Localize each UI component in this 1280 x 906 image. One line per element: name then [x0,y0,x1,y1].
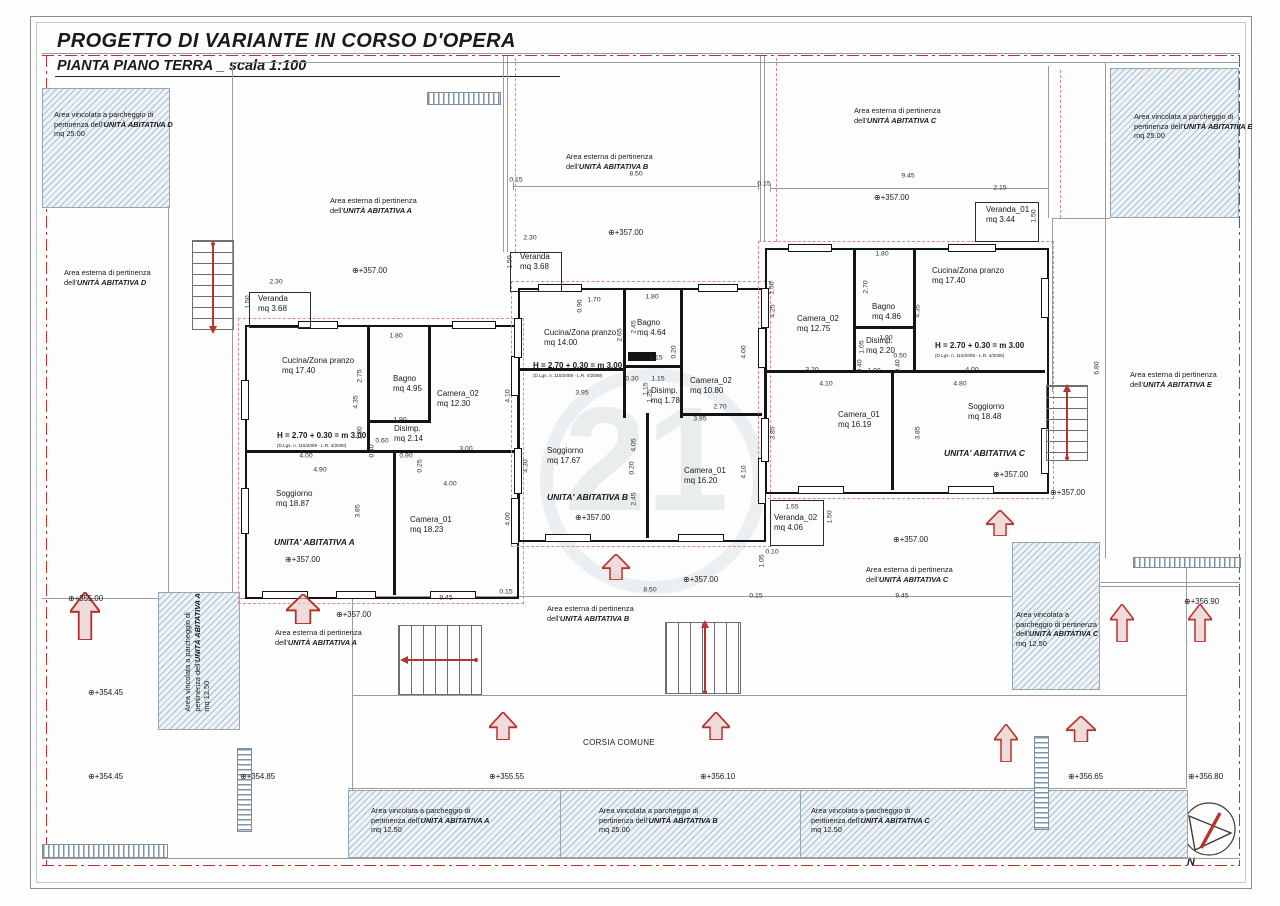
dimension-label: 4.10 [505,389,512,402]
benchmark-icon: ⊕ [575,513,582,522]
dimension-label: 4.80 [953,381,966,388]
interior-wall [646,413,649,538]
dimension-label: 1.25 [647,389,654,402]
window [948,486,994,494]
room-label: Cucina/Zona pranzo mq 17.40 [932,266,1004,286]
hatched-strip [1133,557,1241,568]
dimension-label: 2.30 [523,235,536,242]
window [545,534,591,542]
entrance-arrow-icon [1110,604,1134,642]
dimension-label: 3.85 [355,504,362,517]
elevation-marker: ⊕+357.00 [1050,488,1085,497]
site-line [348,788,1186,789]
benchmark-icon: ⊕ [874,193,881,202]
hatched-strip [237,748,252,832]
height-law-note: (D.Lgs. n. 115/2008 - L.R. 4/2009) [533,373,602,378]
boundary-line-right [1239,55,1240,866]
room-label: Camera_02 mq 12.75 [797,314,839,334]
dimension-label: 0.15 [499,589,512,596]
dimension-label: 0.40 [857,359,864,372]
window [514,448,522,494]
site-line [232,62,1240,63]
dimension-label: 9.45 [439,595,452,602]
site-line [1048,184,1049,192]
subtitle-underline [55,76,560,77]
interior-wall [623,288,626,418]
window [511,356,519,396]
area-pertinenza-label: Area vincolata aparcheggio di pertinenza… [1016,610,1098,648]
dimension-label: 4.00 [741,345,748,358]
window [948,244,996,252]
unit-name-label: UNITA' ABITATIVA A [274,537,355,547]
site-line [507,56,508,252]
area-pertinenza-label: Area vincolata a parcheggio dipertinenza… [1134,112,1252,141]
interior-wall [891,373,894,490]
stair-arrow-line [704,628,706,690]
window [678,534,724,542]
area-pertinenza-label: Area vincolata a parcheggio dipertinenza… [599,806,718,835]
area-pertinenza-label: Area esterna di pertinenzadell'UNITÀ ABI… [275,628,362,647]
veranda-label: Veranda_02 mq 4.06 [774,513,817,533]
site-line [760,56,761,242]
window [1041,278,1049,318]
stair-arrow-line [212,246,214,326]
dimension-label: 0.40 [369,444,376,457]
dimension-label: 0.15 [749,593,762,600]
dimension-label: 0.25 [417,459,424,472]
room-label: Disimp. mq 2.14 [394,424,423,444]
entrance-arrow-icon [286,594,320,624]
elevation-marker: ⊕+357.00 [993,470,1028,479]
elevation-marker: ⊕+357.00 [336,610,371,619]
room-label: Soggiorno mq 17.67 [547,446,583,466]
dimension-label: 4.00 [299,453,312,460]
area-pertinenza-label: Area vincolata a parcheggio dipertinenza… [811,806,930,835]
unit-name-label: UNITA' ABITATIVA B [547,492,628,502]
dimension-label: 1.50 [769,281,776,294]
height-note: H = 2.70 + 0.30 = m 3.00 [277,431,366,440]
dimension-label: 4.35 [915,304,922,317]
stair-arrow-dot [703,690,707,694]
dimension-label: 0.90 [577,299,584,312]
dimension-label: 3.95 [575,390,588,397]
hatched-parking-area [1110,68,1239,218]
dimension-label: 0.40 [895,359,902,372]
benchmark-icon: ⊕ [336,610,343,619]
room-label: Camera_01 mq 16.20 [684,466,726,486]
dimension-label: 4.05 [631,438,638,451]
dimension-label: 1.55 [785,504,798,511]
stair-arrow-dot [474,658,478,662]
hatched-parking-area [42,88,170,208]
dimension-label: 1.05 [759,554,766,567]
dimension-label: 3.20 [805,367,818,374]
dimension-label: 4.00 [965,367,978,374]
dimension-label: 2.65 [617,328,624,341]
benchmark-icon: ⊕ [893,535,900,544]
dimension-label: 3.85 [770,426,777,439]
benchmark-icon: ⊕ [1068,772,1075,781]
site-line [513,186,758,187]
dimension-label: 1.80 [645,294,658,301]
veranda-label: Veranda mq 3.68 [520,252,550,272]
area-pertinenza-label: Area esterna di pertinenzadell'UNITÀ ABI… [547,604,634,623]
room-label: Camera_01 mq 16.19 [838,410,880,430]
stair-arrow-head [400,656,408,664]
room-label: Cucina/Zona pranzo mq 17.40 [282,356,354,376]
staircase [665,622,741,694]
elevation-marker: ⊕+357.00 [893,535,928,544]
dimension-label: 1.90 [879,335,892,342]
dimension-label: 4.90 [313,467,326,474]
dimension-label: 1.50 [507,255,514,268]
dimension-label: 8.50 [643,587,656,594]
stair-arrow-line [408,659,474,661]
dimension-label: 2.70 [713,404,726,411]
dimension-label: 2.70 [863,280,870,293]
site-line [1105,62,1106,558]
dimension-label: 4.00 [443,481,456,488]
dimension-label: 4.10 [741,465,748,478]
dimension-label: 3.95 [693,416,706,423]
elevation-marker: ⊕+356.10 [700,772,735,781]
room-label: Disimp. mq 1.78 [651,386,680,406]
dimension-label: 4.10 [819,381,832,388]
hatched-strip [42,844,168,858]
dimension-label: 3.00 [459,446,472,453]
room-label: Cucina/Zona pranzo mq 14.00 [544,328,616,348]
window [336,591,376,599]
site-line [1052,218,1110,219]
dimension-label: 1.05 [859,340,866,353]
north-compass [1180,800,1238,858]
site-line [232,62,233,598]
dimension-label: 1.00 [867,368,880,375]
benchmark-icon: ⊕ [68,594,75,603]
window [430,591,476,599]
area-pertinenza-label: Area esterna di pertinenzadell'UNITÀ ABI… [64,268,151,287]
stair-arrow-line [1066,392,1068,456]
stair-arrow-head [701,620,709,628]
benchmark-icon: ⊕ [683,575,690,584]
dimension-label: 0.60 [375,438,388,445]
entrance-arrow-icon [489,712,517,740]
benchmark-icon: ⊕ [608,228,615,237]
elevation-marker: ⊕+354.45 [88,688,123,697]
site-line [1100,586,1240,587]
dimension-label: 4.35 [353,395,360,408]
height-note: H = 2.70 + 0.30 = m 3.00 [935,341,1024,350]
window [452,321,496,329]
dimension-label: 2.45 [631,320,638,333]
entrance-arrow-icon [602,554,630,580]
area-pertinenza-label: Area esterna di pertinenzadell'UNITÀ ABI… [330,196,417,215]
dimension-label: 8.50 [629,171,642,178]
dimension-label: 0.20 [629,461,636,474]
elevation-marker: ⊕+357.00 [575,513,610,522]
interior-wall [428,325,431,423]
elevation-marker: ⊕+354.85 [240,772,275,781]
benchmark-icon: ⊕ [285,555,292,564]
dimension-label: 0.30 [625,376,638,383]
benchmark-icon: ⊕ [993,470,1000,479]
area-pertinenza-label: Area esterna di pertinenzadell'UNITÀ ABI… [1130,370,1217,389]
site-line [1100,582,1240,583]
benchmark-icon: ⊕ [489,772,496,781]
elevation-marker: ⊕+357.00 [285,555,320,564]
unit-name-label: UNITA' ABITATIVA C [944,448,1025,458]
room-label: Soggiorno mq 18.48 [968,402,1004,422]
hatched-strip [1034,736,1049,830]
benchmark-icon: ⊕ [1188,772,1195,781]
room-label: Camera_02 mq 12.30 [437,389,479,409]
dimension-label: 1.15 [649,355,662,362]
elevation-marker: ⊕+357.00 [608,228,643,237]
pink-dashed-line [515,58,516,252]
area-pertinenza-label: Area vincolata a parcheggio dipertinenza… [54,110,173,139]
elevation-marker: ⊕+356.80 [1188,772,1223,781]
dimension-label: 2.75 [357,369,364,382]
site-line [503,56,504,252]
hatched-strip [427,92,501,105]
interior-wall [393,450,396,595]
dimension-label: 3.85 [915,426,922,439]
benchmark-icon: ⊕ [700,772,707,781]
benchmark-icon: ⊕ [352,266,359,275]
interior-wall [853,248,856,372]
window [698,284,738,292]
elevation-marker: ⊕+355.55 [489,772,524,781]
dimension-label: 2.15 [993,185,1006,192]
site-line [1048,66,1049,218]
entrance-arrow-icon [994,724,1018,762]
stair-arrow-head [1063,384,1071,392]
dimension-label: 4.25 [770,304,777,317]
site-line [764,56,765,242]
window [798,486,844,494]
window [241,488,249,534]
area-pertinenza-label: Area esterna di pertinenzadell'UNITÀ ABI… [854,106,941,125]
area-pertinenza-label: Area esterna di pertinenzadell'UNITÀ ABI… [566,152,653,171]
dimension-label: 1.15 [651,376,664,383]
dimension-label: 0.10 [765,549,778,556]
window [788,244,832,252]
interior-wall [853,326,916,329]
entrance-arrow-icon [1066,716,1096,742]
room-label: Bagno mq 4.86 [872,302,901,322]
dimension-label: 9.45 [901,173,914,180]
drawing-subtitle: PIANTA PIANO TERRA _ scala 1:100 [57,58,306,74]
benchmark-icon: ⊕ [88,772,95,781]
dimension-label: 0.20 [671,345,678,358]
elevation-marker: ⊕+354.45 [88,772,123,781]
window [758,458,766,504]
dimension-label: 0.15 [509,177,522,184]
elevation-marker: ⊕+356.65 [1068,772,1103,781]
elevation-marker: ⊕+357.00 [352,266,387,275]
title-underline [42,53,1240,54]
height-law-note: (D.Lgs. n. 115/2008 - L.R. 4/2009) [277,443,346,448]
room-label: Soggiorno mq 18.87 [276,489,312,509]
dimension-label: 0.15 [757,181,770,188]
window [241,380,249,420]
dimension-label: 1.80 [389,333,402,340]
entrance-arrow-icon [702,712,730,740]
interior-wall [623,365,683,368]
window [511,498,519,544]
area-pertinenza-label: Area esterna di pertinenzadell'UNITÀ ABI… [866,565,953,584]
stair-arrow-dot [211,242,215,246]
dimension-label: 1.50 [1031,209,1038,222]
drawing-title: PROGETTO DI VARIANTE IN CORSO D'OPERA [57,30,516,53]
dimension-label: 1.00 [357,426,364,439]
dimension-label: 6.80 [1094,361,1101,374]
benchmark-icon: ⊕ [1050,488,1057,497]
window [514,318,522,358]
dimension-label: 1.50 [827,510,834,523]
dimension-label: 1.90 [393,417,406,424]
dimension-label: 2.45 [631,492,638,505]
dimension-label: 4.00 [505,512,512,525]
dimension-label: 4.30 [523,459,530,472]
interior-wall [245,450,515,453]
stair-arrow-head [209,326,217,334]
boundary-line-bottom [42,865,1240,866]
dimension-label: 1.50 [245,295,252,308]
dimension-label: 1.80 [875,251,888,258]
pink-dashed-line [1060,70,1061,218]
window [758,328,766,368]
stair-arrow-dot [1065,456,1069,460]
room-label: Camera_02 mq 10.80 [690,376,732,396]
entrance-arrow-icon [1188,604,1212,642]
dimension-label: 2.30 [269,279,282,286]
elevation-marker: ⊕+357.00 [874,193,909,202]
dimension-label: 9.45 [895,593,908,600]
drawing-sheet: 21 PROGETTO DI VARIANTE IN CORSO D'OPERA… [0,0,1280,906]
room-label: Camera_01 mq 18.23 [410,515,452,535]
benchmark-icon: ⊕ [240,772,247,781]
elevation-marker: ⊕+356.90 [1184,597,1219,606]
elevation-marker: ⊕+355.00 [68,594,103,603]
site-line [352,596,353,790]
room-label: Bagno mq 4.64 [637,318,666,338]
corsia-comune-label: CORSIA COMUNE [583,738,655,747]
boundary-line-top [42,55,1240,56]
height-note: H = 2.70 + 0.30 = m 3.00 [533,361,622,370]
site-line [42,858,1240,859]
dimension-label: 0.90 [399,453,412,460]
height-law-note: (D.Lgs. n. 115/2008 - L.R. 4/2009) [935,353,1004,358]
interior-wall [680,413,762,416]
veranda-label: Veranda mq 3.68 [258,294,288,314]
benchmark-icon: ⊕ [88,688,95,697]
site-line [1186,558,1187,788]
room-label: Bagno mq 4.95 [393,374,422,394]
area-pertinenza-label: Area vincolata a parcheggio dipertinenza… [371,806,489,835]
site-line [352,695,1186,696]
elevation-marker: ⊕+357.00 [683,575,718,584]
benchmark-icon: ⊕ [1184,597,1191,606]
window [761,418,769,462]
interior-wall [680,288,683,418]
pink-dashed-line [776,58,777,242]
dimension-label: 1.70 [587,297,600,304]
veranda-label: Veranda_01 mq 3.44 [986,205,1029,225]
area-pertinenza-label: Area vincolata a parcheggio dipertinenza… [183,593,212,711]
interior-wall [367,325,370,453]
entrance-arrow-icon [986,510,1014,536]
